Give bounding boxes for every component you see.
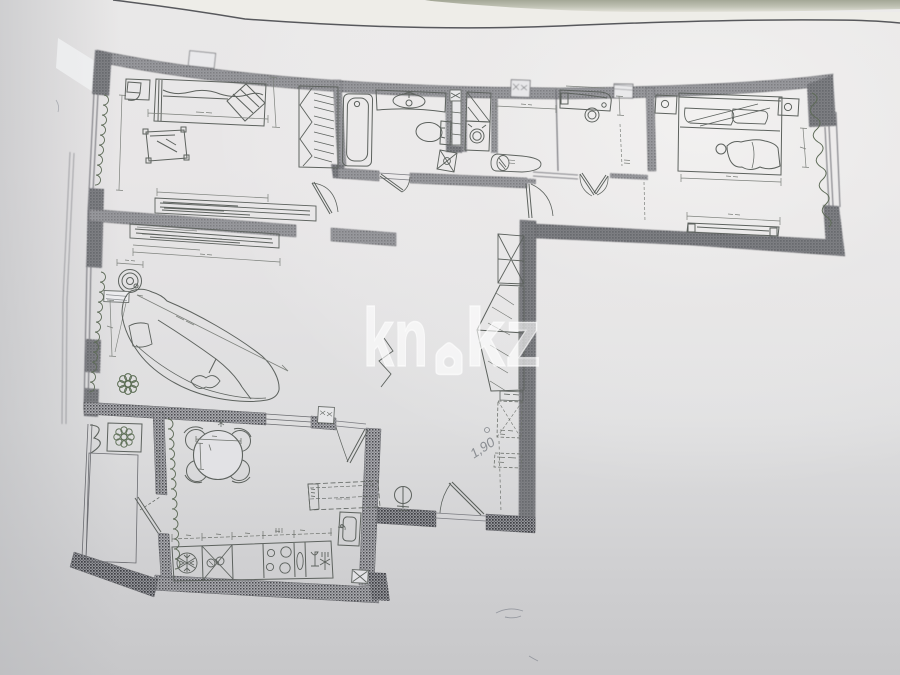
- svg-text:kz: kz: [465, 291, 541, 384]
- svg-text:kn: kn: [363, 291, 428, 384]
